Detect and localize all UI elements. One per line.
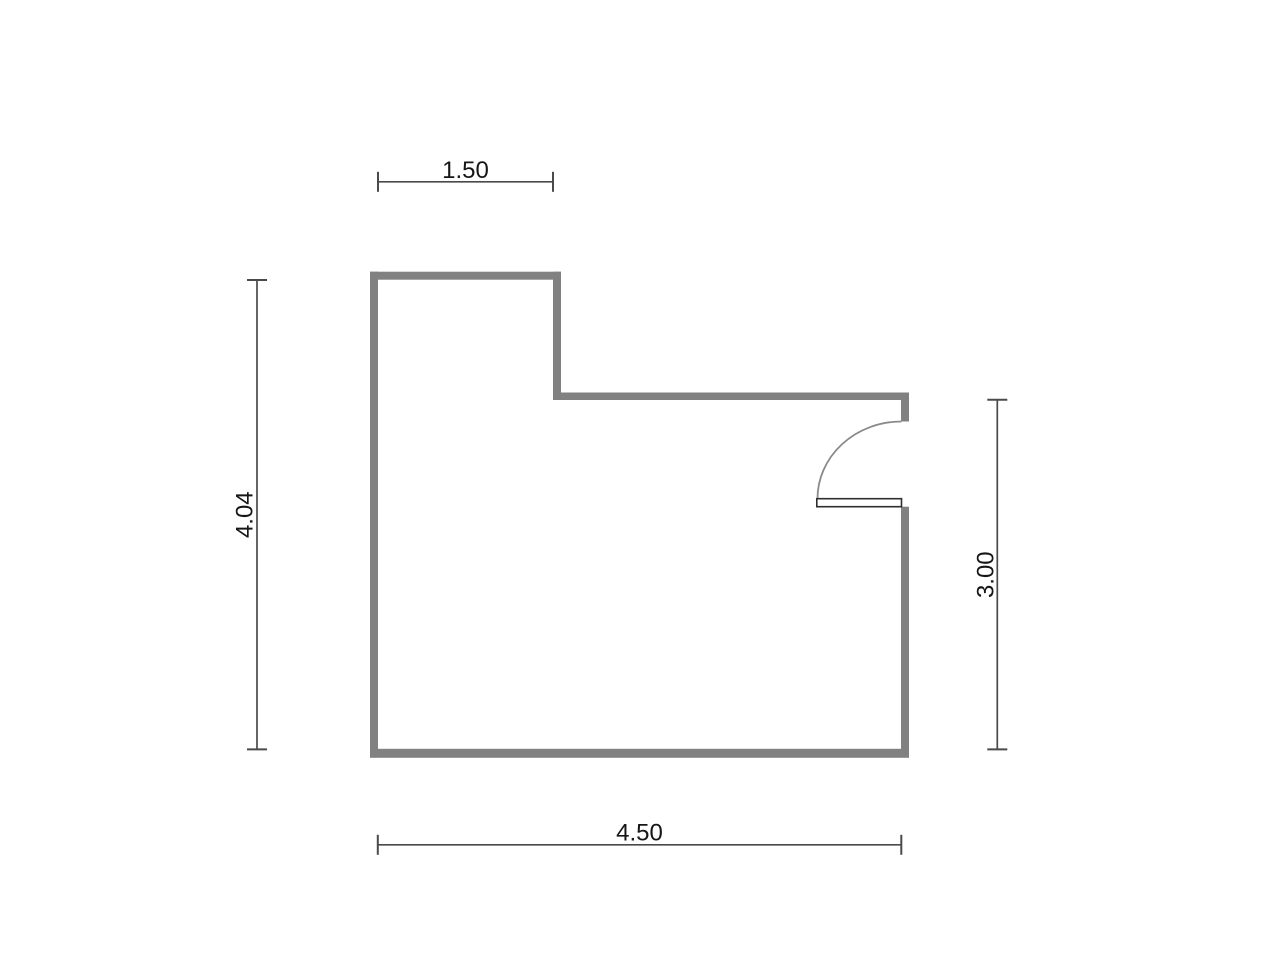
svg-text:4.50: 4.50 <box>616 819 663 846</box>
svg-text:3.00: 3.00 <box>973 551 1000 598</box>
svg-text:1.50: 1.50 <box>442 157 489 184</box>
svg-text:4.04: 4.04 <box>232 491 259 538</box>
